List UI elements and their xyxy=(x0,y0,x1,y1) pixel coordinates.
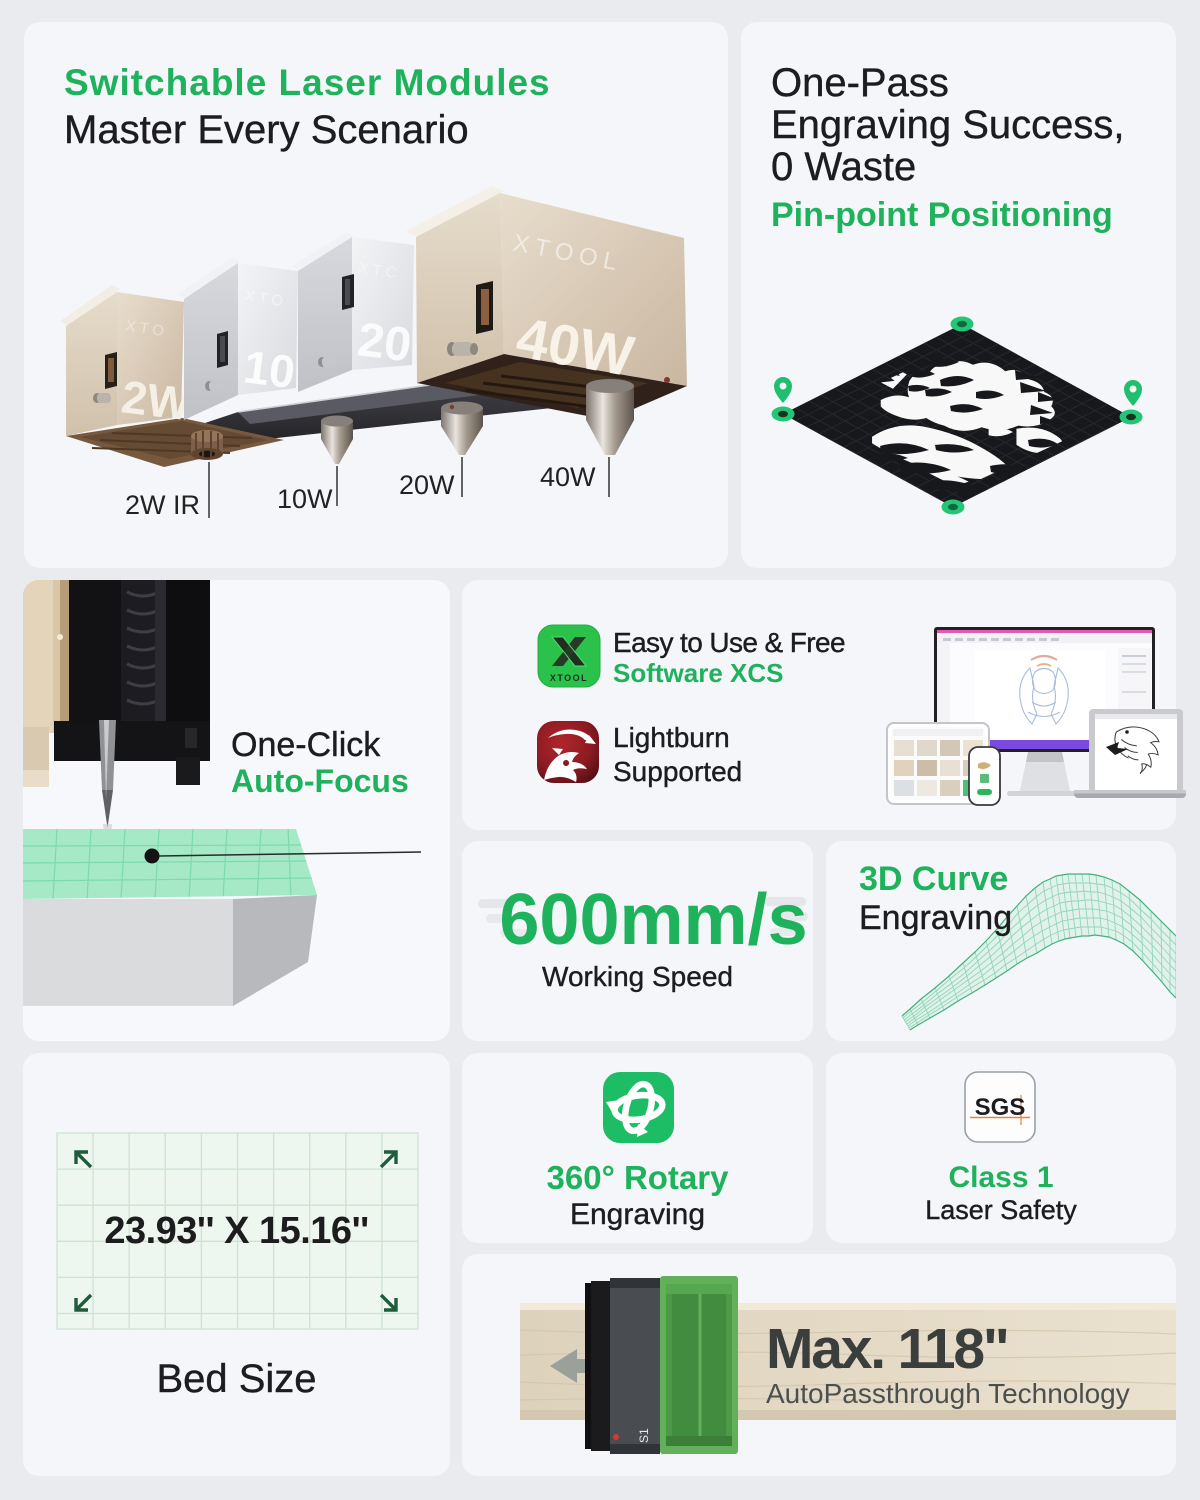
svg-text:10W: 10W xyxy=(277,484,333,514)
svg-text:20: 20 xyxy=(355,313,414,372)
svg-text:40W: 40W xyxy=(540,462,596,492)
svg-text:S1: S1 xyxy=(637,1428,651,1443)
svg-text:2W: 2W xyxy=(119,370,194,430)
svg-text:20W: 20W xyxy=(399,470,455,500)
svg-text:10: 10 xyxy=(241,340,298,398)
svg-text:XTOOL: XTOOL xyxy=(550,673,588,683)
svg-text:2W IR: 2W IR xyxy=(125,490,200,520)
